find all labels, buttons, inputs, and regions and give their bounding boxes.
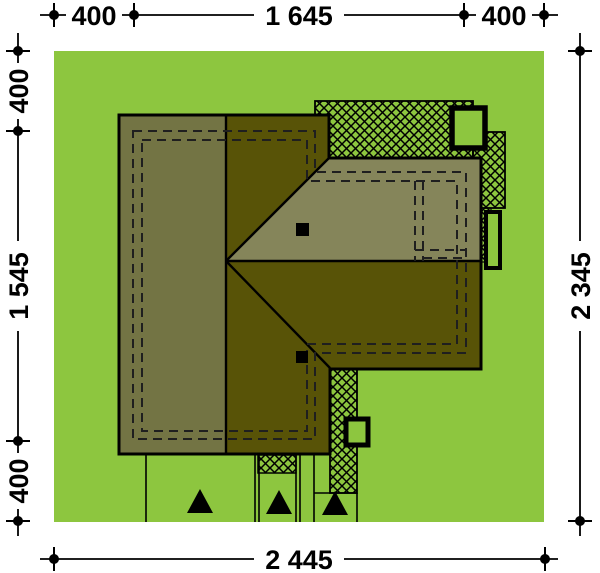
dim-anchor-dot	[459, 10, 469, 20]
dim-label: 400	[4, 68, 34, 113]
dim-anchor-dot	[49, 554, 59, 564]
window-frame-south	[346, 419, 368, 445]
dimension-line-top: 400 1 645 400	[40, 1, 558, 31]
dim-label-top-left: 400	[66, 1, 122, 31]
dim-anchor-dot	[575, 516, 585, 526]
dimension-line-bottom: 2 445	[40, 545, 558, 573]
dim-label-right: 2 345	[566, 241, 596, 331]
dimension-line-left: 400 1 545 400	[4, 33, 34, 536]
dim-label: 1 645	[265, 1, 333, 31]
dim-label-left-top: 400	[4, 63, 34, 119]
window-frame-north	[452, 108, 485, 148]
walkway-hatch-bottom	[258, 455, 296, 473]
dim-label: 2 445	[265, 545, 333, 573]
dim-anchor-dot	[540, 554, 550, 564]
chimney	[296, 223, 309, 236]
roof-west-plane	[119, 115, 226, 454]
chimney	[296, 351, 308, 363]
dim-label: 2 345	[566, 252, 596, 320]
dimension-line-right: 2 345	[566, 33, 596, 536]
dim-anchor-dot	[129, 10, 139, 20]
dim-label-left-middle: 1 545	[4, 241, 34, 331]
dim-label: 400	[481, 1, 526, 31]
dim-label: 400	[71, 1, 116, 31]
dim-label-bottom: 2 445	[254, 545, 344, 573]
dim-anchor-dot	[539, 10, 549, 20]
dim-anchor-dot	[13, 516, 23, 526]
dim-anchor-dot	[13, 436, 23, 446]
dim-label: 1 545	[4, 252, 34, 320]
dim-anchor-dot	[13, 126, 23, 136]
dim-label-top-center: 1 645	[254, 1, 344, 31]
dim-anchor-dot	[13, 46, 23, 56]
window-frame-east	[486, 212, 500, 268]
dim-anchor-dot	[49, 10, 59, 20]
dim-label-top-right: 400	[476, 1, 532, 31]
dim-anchor-dot	[575, 46, 585, 56]
dim-label: 400	[4, 458, 34, 503]
site-plan-canvas: 400 1 645 400 400 1 545	[0, 0, 600, 573]
site-plan-drawing: 400 1 645 400 400 1 545	[0, 0, 600, 573]
dim-label-left-bottom: 400	[4, 453, 34, 509]
